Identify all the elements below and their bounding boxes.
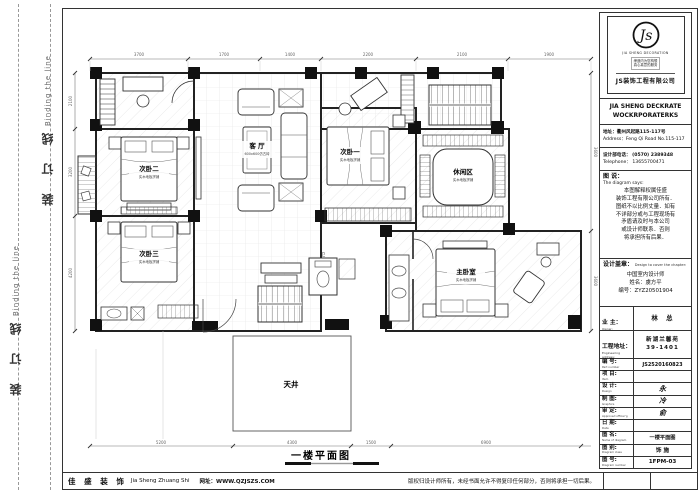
company-logo-icon: Js — [631, 20, 661, 50]
plan-title: 一楼平面图 — [285, 449, 379, 465]
table-row-design: 设 计:Design 永 — [600, 383, 691, 395]
svg-text:卫: 卫 — [321, 252, 326, 258]
svg-text:2100: 2100 — [68, 95, 73, 106]
owner-value: 林 总 — [634, 307, 691, 330]
svg-text:客 厅: 客 厅 — [248, 141, 265, 150]
table-row-approved: 审 定:Approved officer'g 俞 — [600, 408, 691, 420]
svg-text:4300: 4300 — [287, 440, 298, 445]
title-block: Js JIA SHENG DECORATION 缔造内为您构想 真心真意的服务 … — [599, 12, 692, 469]
svg-text:实木地板拼铺: 实木地板拼铺 — [139, 174, 160, 179]
svg-text:600x600仿古砖: 600x600仿古砖 — [244, 151, 270, 156]
company-phone: 设计部电话： (0570) 2389348 Telephone： 1365570… — [600, 148, 691, 171]
svg-text:1700: 1700 — [219, 52, 230, 57]
svg-text:5200: 5200 — [156, 440, 167, 445]
title-block-table: 编 号:Part number JS2520160823 项 目:Item 设 … — [600, 359, 691, 468]
company-address: 地址：衢州风起路115-117号 Address：Feng Qi Road No… — [600, 125, 691, 148]
table-row-drawing-class: 图 别:Diagram class 饰 施 — [600, 445, 691, 457]
diagram-notes: 图 说： The diagram says: 本图解释权属佳盛 装饰工程有限公司… — [600, 171, 691, 259]
table-row-date: 日 期:Date — [600, 420, 691, 432]
logo-caption: JIA SHENG DECORATION — [622, 51, 668, 55]
svg-text:3700: 3700 — [134, 52, 145, 57]
footer-copyright: 版权归设计师所有，未经书面允许不得复印任何部分，否则将承担一切后果。 — [408, 477, 595, 485]
svg-text:4200: 4200 — [68, 267, 73, 278]
svg-text:天井: 天井 — [284, 379, 299, 389]
footer-brand-cn: 佳 盛 装 饰 — [68, 476, 127, 487]
table-row-drawing-name: 图 名:Name of diagram 一楼平面图 — [600, 432, 691, 444]
sheet-frame: 次卧二 实木地板拼铺 次卧三 实木地板拼铺 — [62, 8, 698, 490]
project-address-value: 新湖兰馨苑 39-1401 — [634, 331, 691, 358]
table-row-graphics: 制 图:Graphics 冷 — [600, 396, 691, 408]
svg-text:1400: 1400 — [285, 52, 296, 57]
svg-text:次卧一: 次卧一 — [340, 147, 360, 156]
table-row-item: 项 目:Item — [600, 371, 691, 383]
svg-text:6900: 6900 — [481, 440, 492, 445]
svg-text:主卧室: 主卧室 — [456, 267, 476, 276]
svg-text:1900: 1900 — [544, 52, 555, 57]
company-logo-box: Js JIA SHENG DECORATION 缔造内为您构想 真心真意的服务 … — [600, 13, 691, 99]
design-stamp: 设计盖章： Design to cover the chapter: 中国室内设… — [600, 259, 691, 307]
courtyard: 天井 — [96, 331, 351, 439]
binding-text-upper: 装 订 线Binding the line — [38, 55, 57, 205]
company-name-cn: JS装饰工程有限公司 — [616, 73, 676, 85]
project-address-row: 工程地址： Engineering address: 新湖兰馨苑 39-1401 — [600, 331, 691, 359]
table-row-drawing-number: 图 号:Diagram number 1FPM-03 — [600, 457, 691, 468]
balcony — [78, 156, 96, 214]
svg-text:次卧二: 次卧二 — [139, 164, 159, 173]
svg-text:实木地板拼铺: 实木地板拼铺 — [453, 177, 474, 182]
svg-text:Js: Js — [636, 28, 652, 44]
svg-text:2200: 2200 — [363, 52, 374, 57]
footer-website: 网址：WWW.QZJSZS.COM — [200, 477, 275, 485]
table-row-part-number: 编 号:Part number JS2520160823 — [600, 359, 691, 371]
svg-text:实木地板拼铺: 实木地板拼铺 — [340, 157, 361, 162]
svg-text:实木地板拼铺: 实木地板拼铺 — [456, 277, 477, 282]
svg-text:次卧三: 次卧三 — [139, 249, 159, 258]
drawing-sheet-page: 装 订 线Binding the line 装 订 线Binding the l… — [0, 0, 700, 494]
svg-text:1500: 1500 — [366, 440, 377, 445]
company-slogan: 缔造内为您构想 真心真意的服务 — [631, 57, 661, 70]
svg-text:3200: 3200 — [68, 166, 73, 177]
svg-text:休闲区: 休闲区 — [452, 167, 473, 176]
svg-text:3600: 3600 — [593, 276, 598, 287]
company-name-en: JIA SHENG DECKRATE WOCKRPORATERKS — [600, 99, 691, 125]
sheet-footer: 佳 盛 装 饰 Jia Sheng Zhuang Shi 网址：WWW.QZJS… — [63, 472, 697, 489]
owner-row: 业 主： Owner: 林 总 — [600, 307, 691, 331]
svg-text:2100: 2100 — [457, 52, 468, 57]
svg-text:一楼平面图: 一楼平面图 — [291, 449, 351, 462]
floor-plan: 次卧二 实木地板拼铺 次卧三 实木地板拼铺 — [63, 9, 599, 471]
svg-text:3600: 3600 — [593, 147, 598, 158]
svg-text:实木地板拼铺: 实木地板拼铺 — [139, 259, 160, 264]
footer-cell-1 — [603, 473, 650, 489]
binding-text-lower: 装 订 线Binding the line — [6, 245, 25, 395]
footer-brand-en: Jia Sheng Zhuang Shi — [131, 478, 190, 484]
footer-cell-2 — [650, 473, 697, 489]
